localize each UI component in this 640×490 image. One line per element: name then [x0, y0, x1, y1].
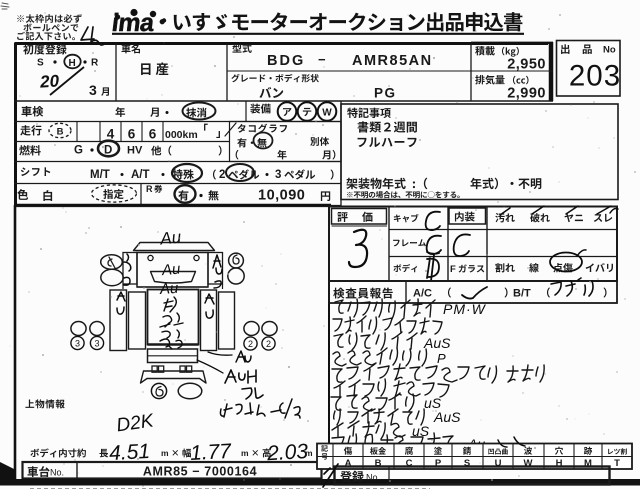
svg-text:203: 203 — [569, 60, 621, 93]
svg-text:10,090: 10,090 — [258, 188, 305, 204]
svg-text:m: m — [241, 448, 249, 458]
svg-text:P: P — [437, 351, 446, 366]
svg-text:000km: 000km — [165, 129, 198, 141]
svg-text:Au: Au — [160, 261, 181, 280]
svg-text:3: 3 — [89, 82, 97, 98]
svg-text:3: 3 — [275, 169, 281, 181]
svg-text:2,990: 2,990 — [507, 86, 546, 102]
svg-text:2: 2 — [248, 339, 253, 349]
svg-text:Au: Au — [158, 227, 182, 248]
svg-text:m: m — [161, 448, 169, 458]
svg-text:F: F — [450, 264, 456, 275]
svg-text:−: − — [318, 52, 326, 67]
svg-text:D: D — [104, 145, 112, 157]
svg-text:PG: PG — [374, 86, 397, 101]
svg-text:AMR85 − 7000164: AMR85 − 7000164 — [143, 465, 257, 479]
svg-text:AuS: AuS — [433, 409, 461, 425]
svg-text:6: 6 — [149, 127, 157, 142]
svg-text:AMR85AN: AMR85AN — [352, 53, 433, 69]
svg-text:H: H — [69, 58, 76, 69]
svg-text:R: R — [91, 58, 99, 69]
svg-text:No.: No. — [366, 473, 380, 483]
svg-text:R: R — [146, 184, 153, 194]
svg-text:4: 4 — [107, 127, 115, 142]
svg-text:2,950: 2,950 — [507, 57, 546, 73]
svg-text:m: m — [305, 448, 313, 458]
svg-text:B/T: B/T — [513, 288, 531, 300]
svg-text:T: T — [614, 458, 620, 469]
svg-text:HV: HV — [127, 145, 143, 157]
svg-text:G: G — [74, 145, 83, 157]
svg-text:3: 3 — [94, 339, 99, 349]
svg-text:PM·W: PM·W — [443, 301, 487, 317]
svg-text:Au: Au — [158, 280, 179, 298]
svg-text:M/T: M/T — [90, 169, 110, 181]
svg-text:B: B — [57, 127, 64, 138]
svg-text:2: 2 — [219, 169, 225, 181]
svg-text:A/C: A/C — [413, 288, 432, 300]
svg-text:S: S — [37, 58, 44, 69]
svg-text:BDG: BDG — [267, 53, 305, 69]
svg-text:A/T: A/T — [131, 169, 150, 181]
svg-text:AuS: AuS — [423, 335, 451, 351]
svg-text:No: No — [603, 45, 616, 56]
svg-text:No.: No. — [50, 468, 64, 478]
svg-text:2: 2 — [266, 339, 271, 349]
svg-text:W: W — [322, 108, 332, 119]
svg-text:6: 6 — [128, 127, 136, 142]
svg-text:3: 3 — [75, 339, 80, 349]
